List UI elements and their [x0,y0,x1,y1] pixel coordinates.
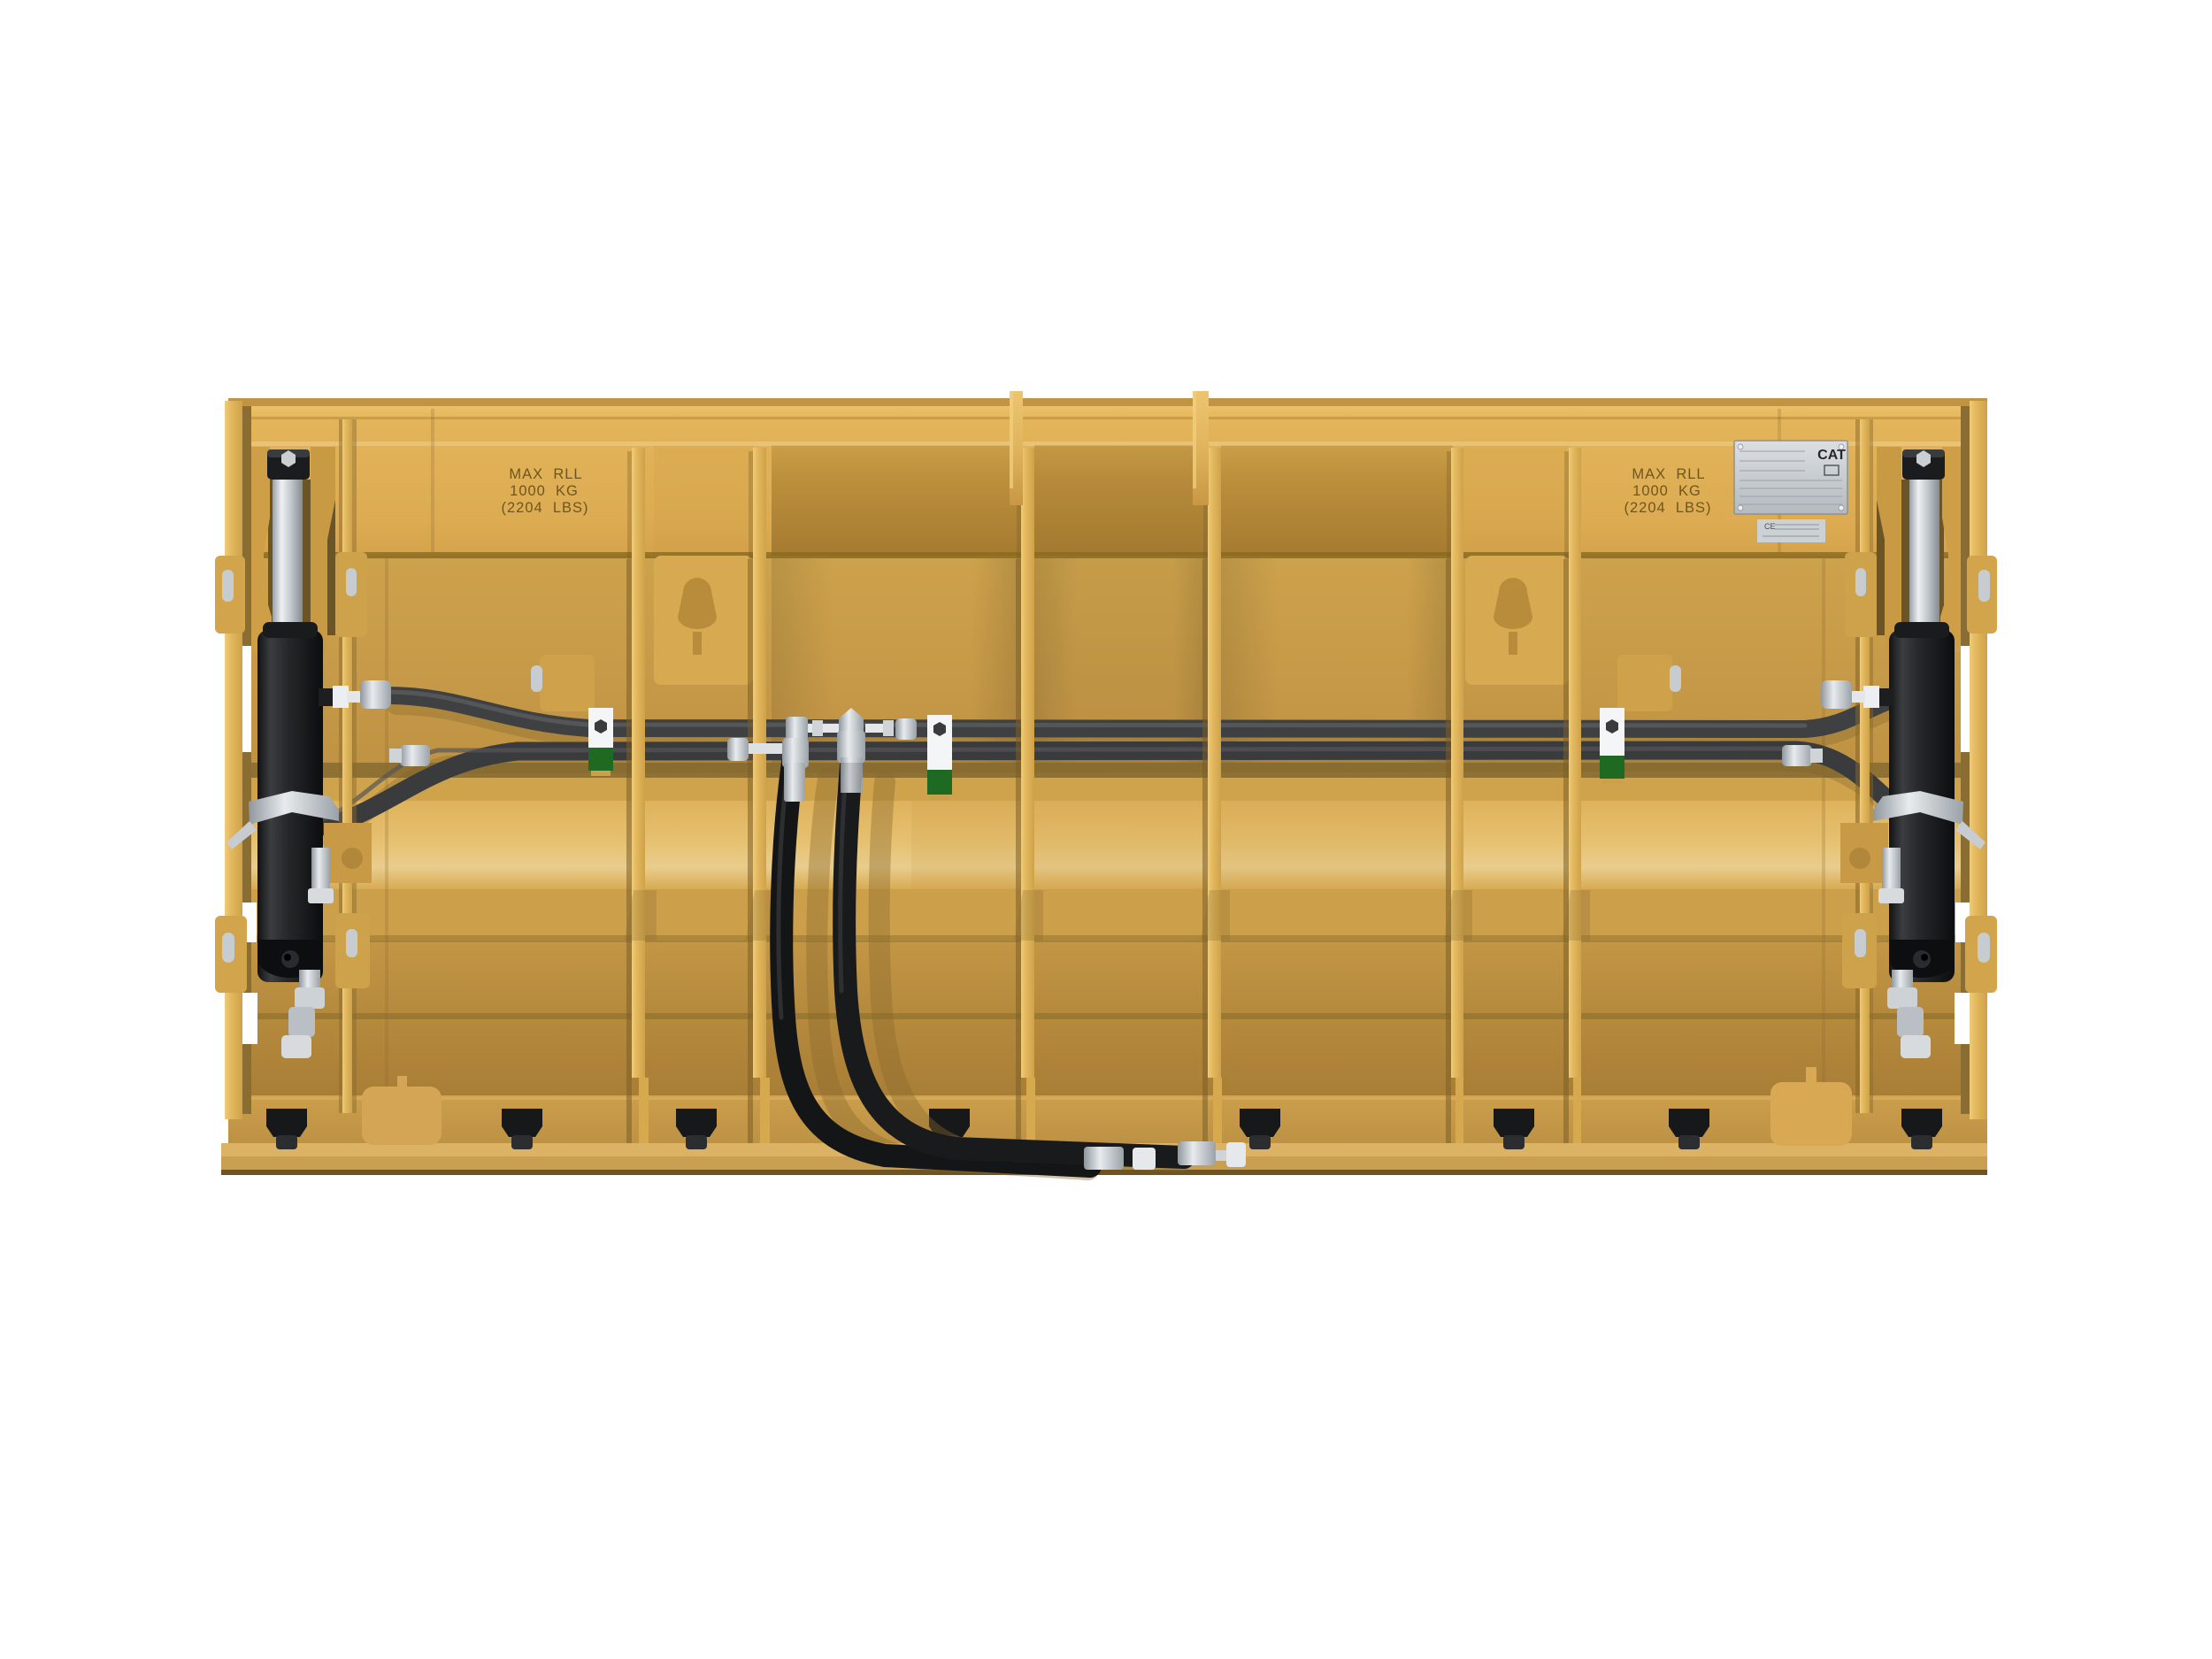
svg-text:(2204 LBS): (2204 LBS) [1624,500,1711,516]
svg-text:(2204 LBS): (2204 LBS) [501,500,588,516]
svg-text:CE: CE [1764,522,1776,531]
svg-text:1000 KG: 1000 KG [1632,483,1701,499]
svg-text:MAX RLL: MAX RLL [1632,466,1705,482]
svg-text:1000 KG: 1000 KG [510,483,579,499]
svg-text:MAX RLL: MAX RLL [509,466,582,482]
svg-text:CAT: CAT [1817,448,1846,463]
